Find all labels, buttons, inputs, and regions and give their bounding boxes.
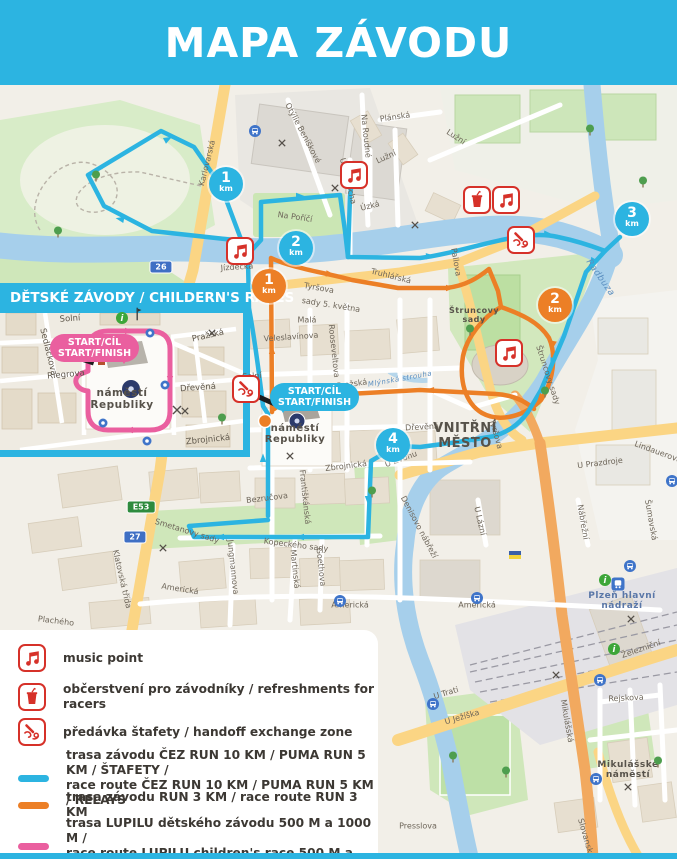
legend-row-handoff: předávka štafety / handoff exchange zone — [18, 718, 352, 746]
inset-title: DĚTSKÉ ZÁVODY / CHILDERN'S RACES — [0, 283, 243, 313]
inset-start-finish-label: START/CÍL START/FINISH — [50, 334, 139, 362]
route-3k-swatch — [18, 802, 49, 809]
route-10k-swatch — [18, 775, 49, 782]
refreshment-icon — [18, 683, 46, 711]
race-map-page: MAPA ZÁVODU — [0, 0, 677, 859]
route-children-swatch — [18, 843, 49, 850]
legend-row-refreshment: občerstvení pro závodníky / refreshments… — [18, 682, 378, 712]
children-races-inset: DĚTSKÉ ZÁVODY / CHILDERN'S RACES — [0, 283, 250, 457]
legend-row-music: music point — [18, 644, 143, 672]
music-icon — [18, 644, 46, 672]
page-title: MAPA ZÁVODU — [165, 19, 513, 67]
start-finish-label: START/CÍL START/FINISH — [270, 383, 359, 411]
handoff-icon — [18, 718, 46, 746]
legend: music point občerstvení pro závodníky / … — [0, 630, 378, 853]
header: MAPA ZÁVODU — [0, 0, 677, 85]
legend-row-route-children: trasa LUPILU dětského závodu 500 M a 100… — [18, 816, 378, 859]
square-monument-icon — [289, 413, 305, 429]
